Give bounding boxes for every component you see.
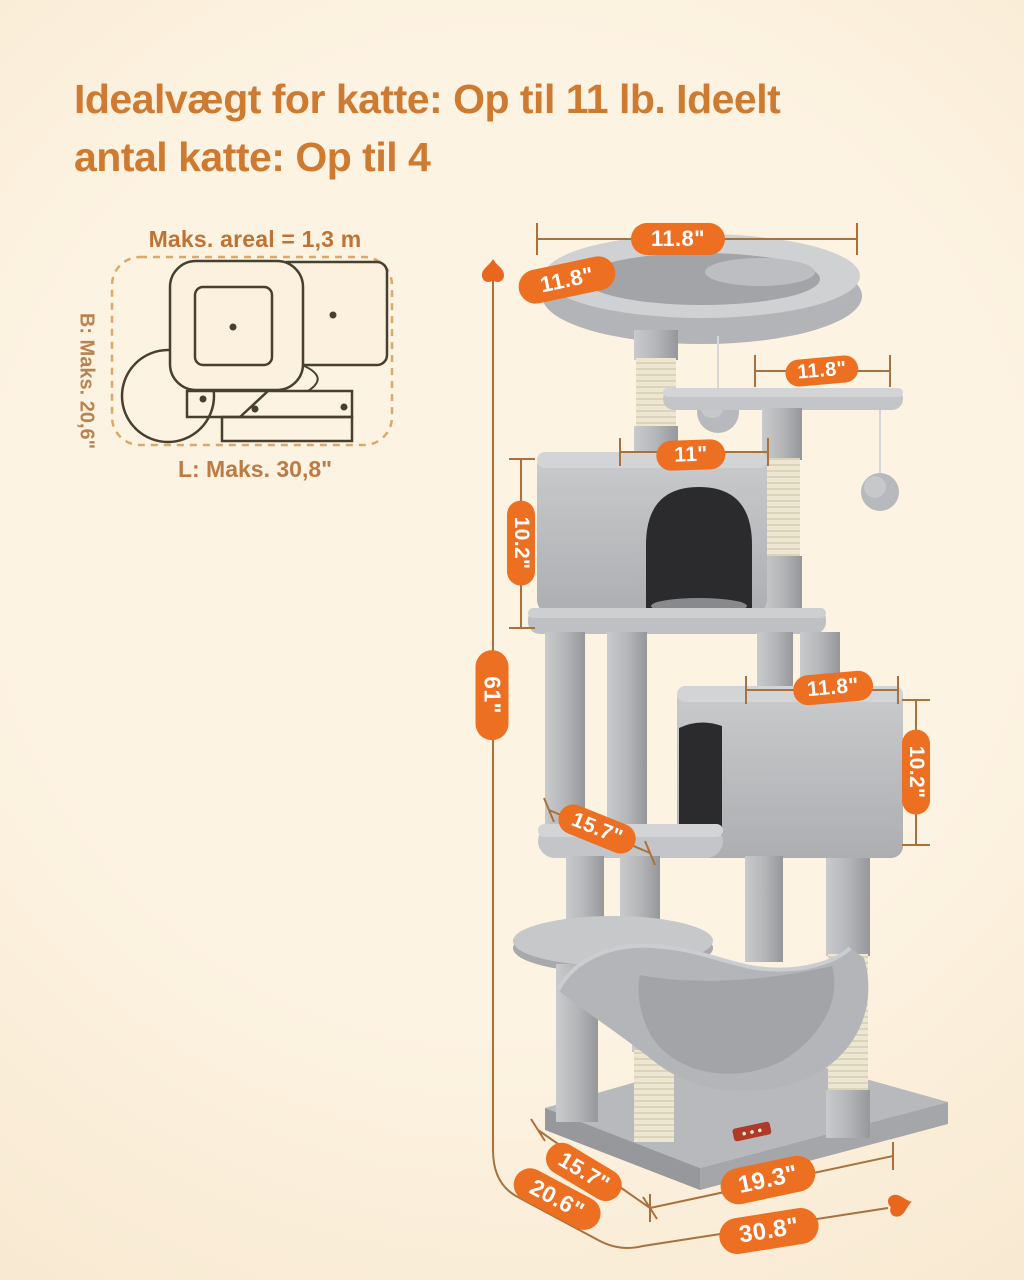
pompom-ball-left xyxy=(697,336,739,433)
badge-lower-condo-height: 10.2" xyxy=(902,730,930,815)
hammock xyxy=(558,946,868,1091)
pompom-ball-right xyxy=(861,410,899,511)
illustration-canvas xyxy=(0,0,1024,1280)
badge-total-height: 61" xyxy=(476,650,509,740)
badge-upper-condo-height: 10.2" xyxy=(507,501,535,586)
arrow-top xyxy=(482,259,504,282)
badge-upper-condo-width: 11" xyxy=(656,439,726,471)
arrow-end xyxy=(887,1191,915,1218)
footprint-diagram xyxy=(112,257,392,445)
footprint-hammock-arc xyxy=(302,365,318,391)
product-dimension-sheet: Idealvægt for katte: Op til 11 lb. Ideel… xyxy=(0,0,1024,1280)
footprint-diagonal xyxy=(240,391,268,417)
upper-condo-opening xyxy=(646,487,752,610)
badge-top-perch-width: 11.8" xyxy=(631,223,725,255)
footprint-perch-outer xyxy=(170,261,303,390)
lower-condo-opening xyxy=(679,722,722,841)
cat-tree-illustration xyxy=(513,234,948,1190)
footprint-base-lower xyxy=(222,417,352,441)
